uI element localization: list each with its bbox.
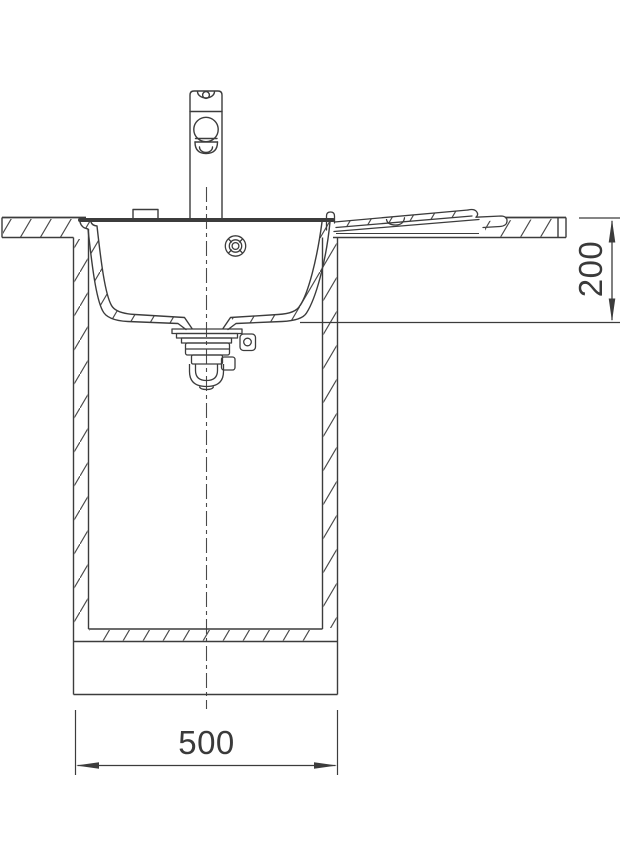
countertop-left-hatch <box>3 219 73 237</box>
dim-width-value: 500 <box>178 724 235 761</box>
cabinet-bottom-panel-hatch <box>90 630 322 641</box>
drain-assembly <box>172 329 256 390</box>
countertop-left <box>0 0 86 238</box>
basin-right-wall-hatch <box>231 222 331 324</box>
dim-width-arrow-left <box>76 762 99 769</box>
cabinet-left-panel-hatch <box>75 239 88 628</box>
dim-depth-value: 200 <box>572 241 609 298</box>
technical-drawing-sheet: 200 500 <box>0 0 621 864</box>
sink-cross-section-drawing: 200 500 <box>0 0 621 864</box>
overflow-connector <box>240 334 256 351</box>
cabinet-right-panel-hatch <box>324 239 337 628</box>
tap-hole-cover <box>133 210 158 219</box>
dim-depth-arrow-up <box>609 220 616 243</box>
dim-width-arrow-right <box>314 762 337 769</box>
drain-control-knob <box>225 236 245 256</box>
drainboard-hatch <box>335 210 473 228</box>
countertop-right-hatch <box>485 219 557 237</box>
dimension-width: 500 <box>76 710 338 775</box>
dim-depth-arrow-down <box>609 299 616 322</box>
cabinet <box>74 229 338 695</box>
faucet-top-arc <box>198 92 215 99</box>
basin-left-wall-hatch <box>80 222 185 324</box>
drainboard <box>327 210 508 232</box>
